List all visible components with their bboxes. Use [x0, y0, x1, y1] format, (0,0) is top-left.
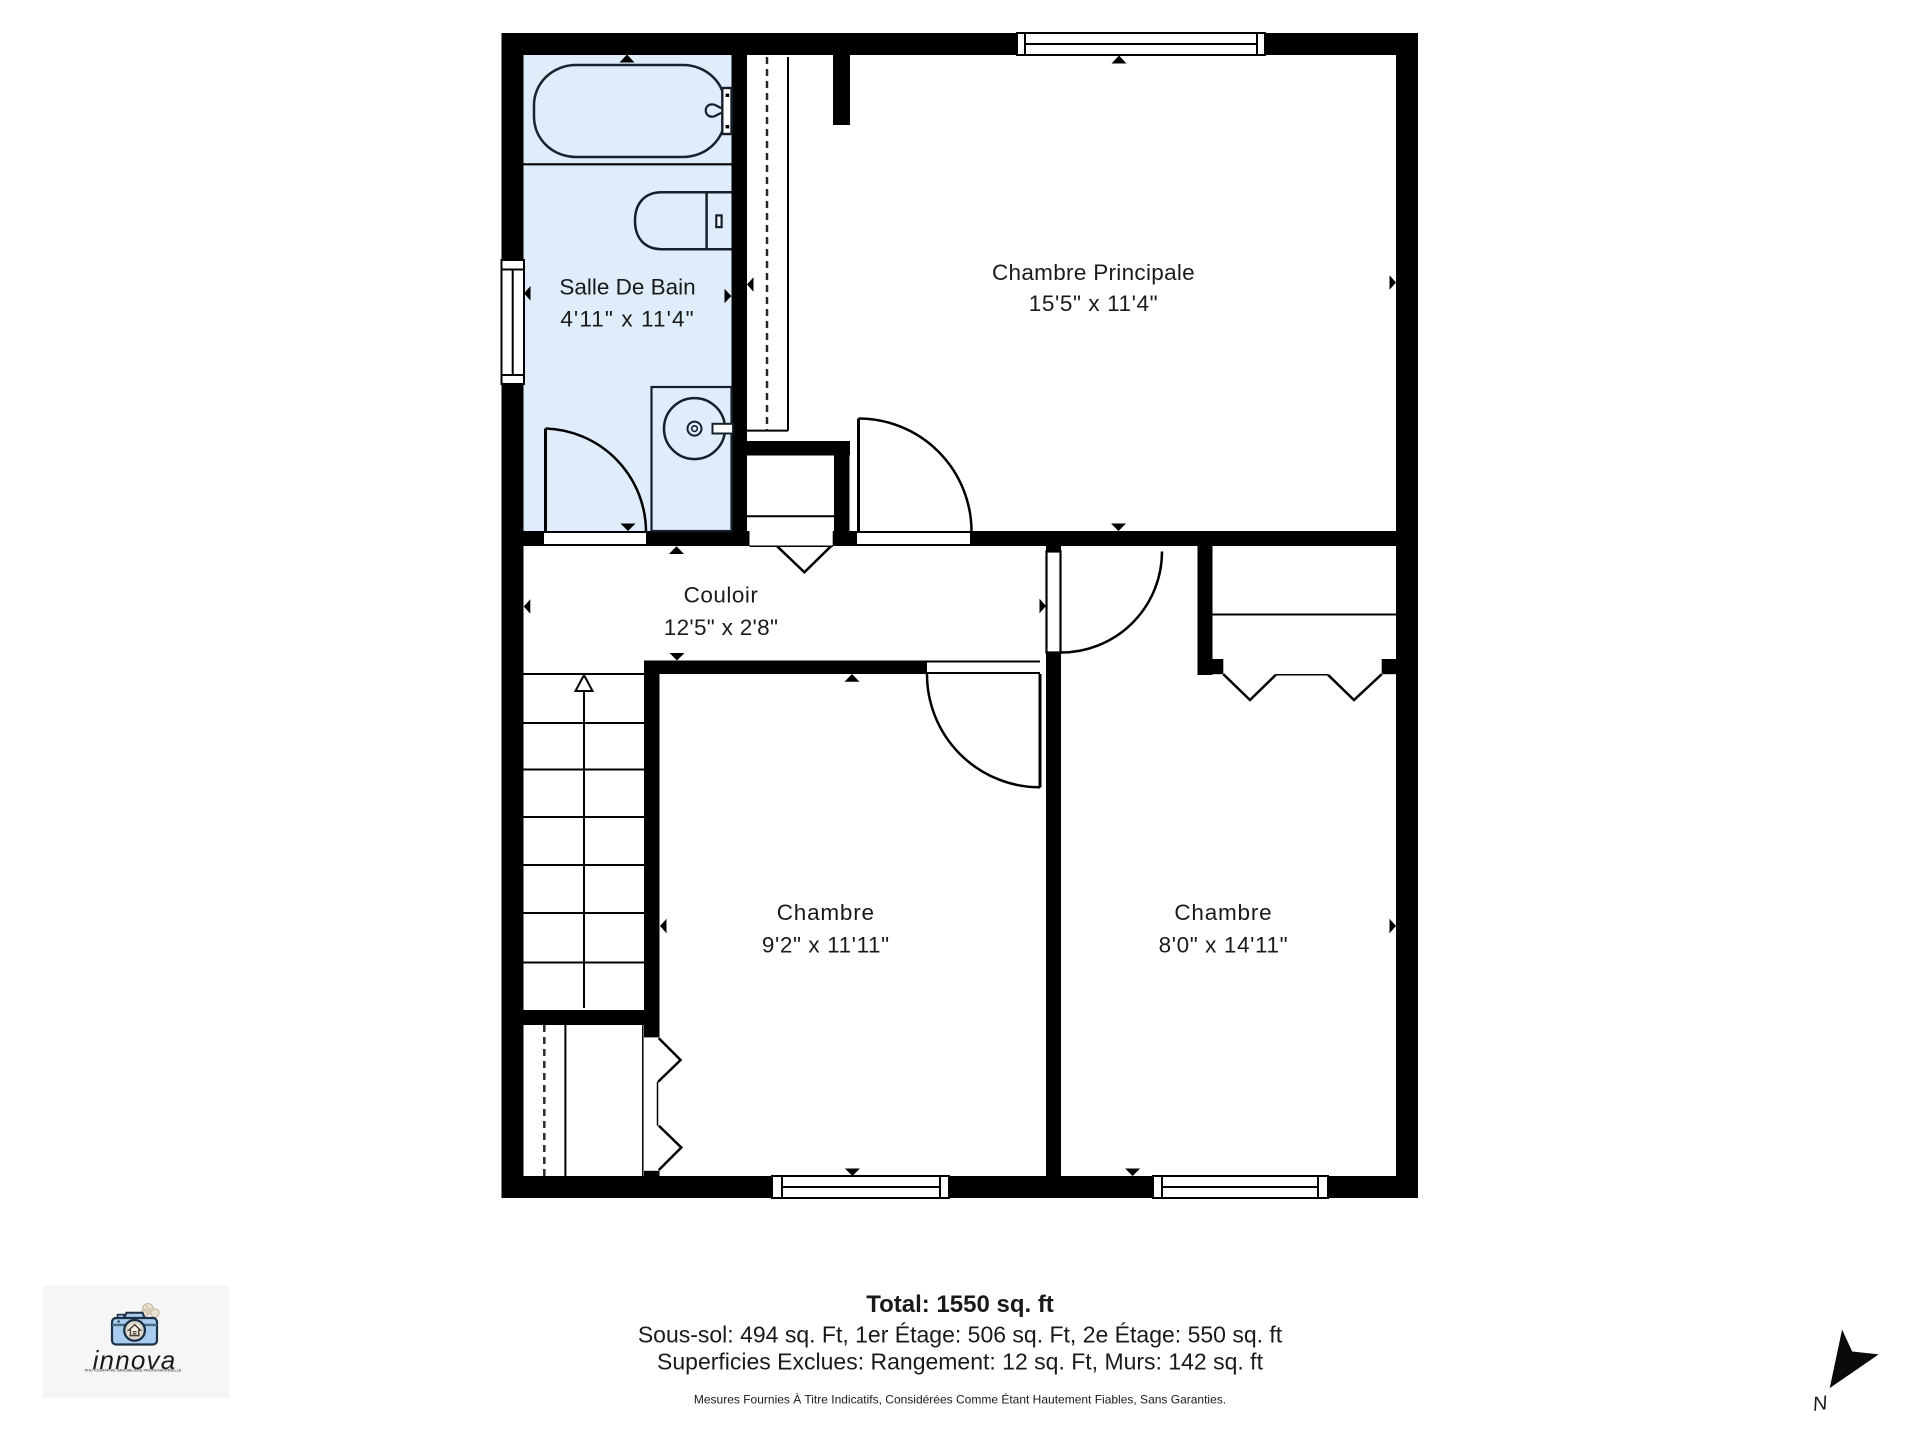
- svg-text:Couloir: Couloir: [684, 583, 759, 608]
- svg-text:4'11" x 11'4": 4'11" x 11'4": [560, 307, 694, 332]
- svg-text:Mesures Fournies À Titre Indic: Mesures Fournies À Titre Indicatifs, Con…: [694, 1392, 1226, 1407]
- svg-text:Sous-sol: 494 sq. Ft, 1er Étag: Sous-sol: 494 sq. Ft, 1er Étage: 506 sq.…: [638, 1322, 1283, 1348]
- svg-text:Chambre: Chambre: [777, 900, 875, 925]
- svg-text:Superficies Exclues: Rangement: Superficies Exclues: Rangement: 12 sq. F…: [657, 1349, 1264, 1375]
- svg-text:Salle De Bain: Salle De Bain: [559, 275, 695, 300]
- svg-text:Total: 1550 sq. ft: Total: 1550 sq. ft: [866, 1291, 1054, 1318]
- svg-text:Chambre Principale: Chambre Principale: [992, 260, 1195, 285]
- svg-text:8'0" x 14'11": 8'0" x 14'11": [1159, 933, 1289, 958]
- svg-text:12'5" x 2'8": 12'5" x 2'8": [664, 615, 779, 640]
- svg-text:9'2" x 11'11": 9'2" x 11'11": [762, 933, 890, 958]
- svg-text:PHOTOGRAPHIE IMMOBILIÈRE PROFE: PHOTOGRAPHIE IMMOBILIÈRE PROFESSIONNELLE: [85, 1368, 182, 1373]
- svg-text:Chambre: Chambre: [1174, 900, 1272, 925]
- svg-text:15'5" x 11'4": 15'5" x 11'4": [1029, 291, 1159, 316]
